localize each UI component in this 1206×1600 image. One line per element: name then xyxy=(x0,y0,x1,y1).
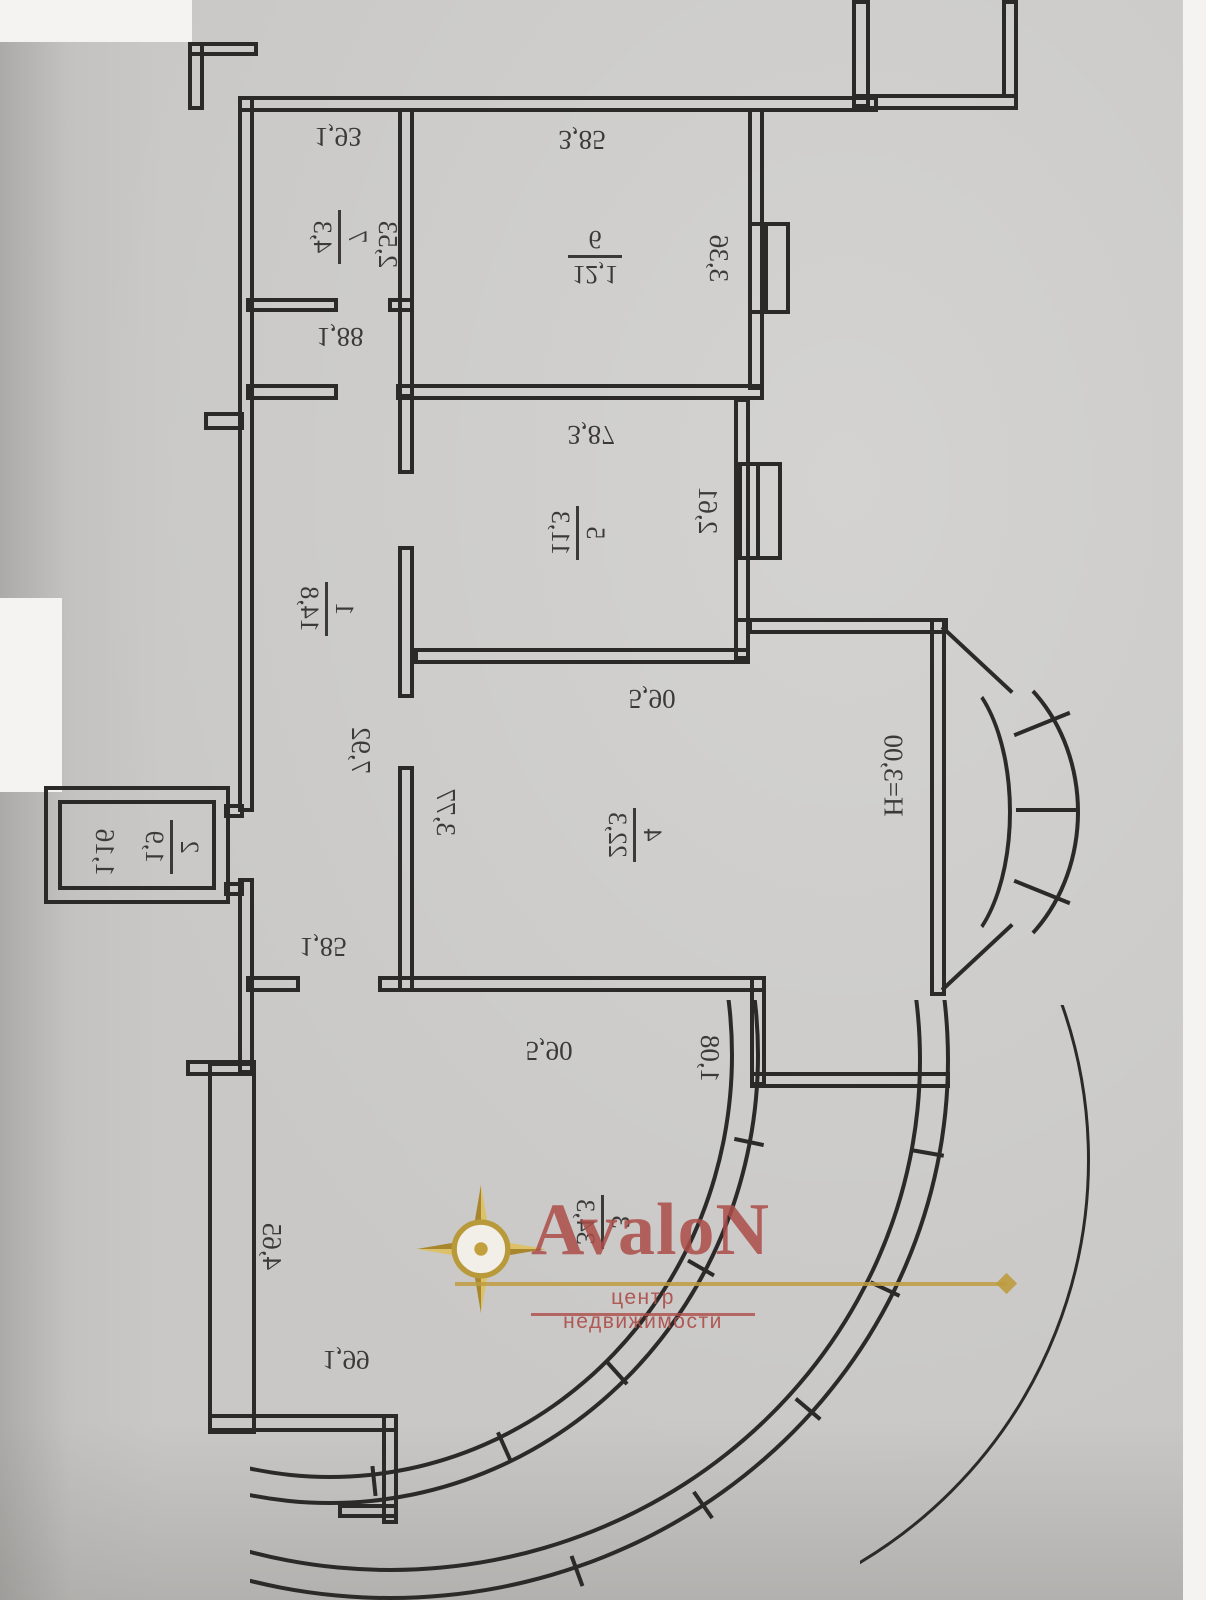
dim-corridor-door: 1,85 xyxy=(276,926,370,968)
room-number: 5 xyxy=(582,527,609,540)
fraction-bar xyxy=(339,210,342,264)
dim-text: 2,61 xyxy=(693,487,724,534)
room-area: 11,3 xyxy=(547,511,574,556)
wall xyxy=(224,804,244,818)
window-room5 xyxy=(738,462,782,560)
dim-text: 1,99 xyxy=(322,1345,369,1376)
wall xyxy=(398,384,414,474)
dim-text: 3,36 xyxy=(704,235,735,282)
dim-text: 4,65 xyxy=(257,1223,288,1270)
dim-kitchen-window: 3,36 xyxy=(700,210,738,308)
wall xyxy=(852,0,870,108)
dim-text: 3,85 xyxy=(558,125,605,156)
dim-kitchen-width: 3,85 xyxy=(522,118,642,162)
wall xyxy=(238,96,878,112)
dim-text: 3,87 xyxy=(567,420,614,451)
fraction-bar xyxy=(171,820,174,874)
room-area: 14,8 xyxy=(296,586,323,632)
dim-living-side: 4,65 xyxy=(254,1200,290,1294)
room-label-bathroom: 74,3 xyxy=(293,193,387,281)
dim-text: 1,08 xyxy=(695,1035,726,1082)
ceiling-height-note: Н=3,00 xyxy=(870,694,916,858)
dim-text: Н=3,00 xyxy=(878,735,909,817)
wall xyxy=(396,384,764,400)
room-area: 34,3 xyxy=(572,1199,599,1245)
wall xyxy=(748,618,948,634)
dim-text: 1,16 xyxy=(90,829,121,876)
room-area: 4,3 xyxy=(309,221,336,254)
wall xyxy=(398,546,414,698)
dim-text: 1,93 xyxy=(314,122,361,153)
wall xyxy=(1002,0,1018,98)
dim-text: 1,88 xyxy=(316,322,363,353)
window-tick xyxy=(1016,808,1078,812)
room-number: 3 xyxy=(607,1216,634,1229)
dim-room4-side: 3,77 xyxy=(428,764,464,862)
room-area: 12,1 xyxy=(572,261,618,288)
dim-room5-width: 3,87 xyxy=(540,414,642,456)
dim-room4-width: 5,90 xyxy=(590,678,714,720)
dim-living-step: 1,08 xyxy=(690,1016,730,1102)
floor-plan-photo: { "watermark": { "brand": "AvaloN", "tag… xyxy=(0,0,1206,1600)
fraction-bar xyxy=(568,256,622,259)
floor-plan-drawing: 1,93 2,53 1,88 3,85 3,36 3,87 2,61 7,92 … xyxy=(0,0,1206,1600)
dim-hall-width: 1,88 xyxy=(288,316,392,358)
dim-text: 5,90 xyxy=(525,1036,572,1067)
wall-vent-stub xyxy=(204,412,244,430)
room-number: 4 xyxy=(639,829,666,842)
dim-text: 3,77 xyxy=(431,789,462,836)
wall xyxy=(246,384,338,400)
dim-room5-window: 2,61 xyxy=(690,460,726,562)
window-kitchen xyxy=(748,222,790,314)
bay-window-arc-outer xyxy=(790,644,1080,980)
wall xyxy=(734,618,750,664)
room-label-room5: 511,3 xyxy=(529,489,627,577)
window-glass-line xyxy=(764,226,768,310)
wall xyxy=(378,976,766,992)
room-number: 1 xyxy=(331,603,358,616)
wall xyxy=(246,976,300,992)
dim-text: 5,90 xyxy=(628,684,675,715)
room-label-kitchen: 612,1 xyxy=(546,208,644,306)
dim-bathroom-width: 1,93 xyxy=(282,116,394,158)
dim-text: 7,92 xyxy=(346,727,377,774)
room-number: 7 xyxy=(344,231,371,244)
wall xyxy=(208,1062,256,1434)
dim-wc-width: 1,16 xyxy=(86,810,124,896)
dim-living-bottom: 1,99 xyxy=(294,1338,398,1382)
room-label-wc: 21,9 xyxy=(129,811,215,883)
dim-living-width: 5,90 xyxy=(490,1030,608,1072)
wall xyxy=(852,94,1018,110)
wall xyxy=(246,298,338,312)
dim-corridor-length: 7,92 xyxy=(344,706,378,796)
room-label-corridor: 114,8 xyxy=(288,564,366,654)
fraction-bar xyxy=(577,506,580,560)
wall xyxy=(186,1060,256,1076)
window-glass-line xyxy=(756,466,760,556)
room-number: 6 xyxy=(589,226,602,253)
fraction-bar xyxy=(602,1195,605,1249)
wall xyxy=(224,882,244,896)
room-area: 1,9 xyxy=(141,831,168,864)
fraction-bar xyxy=(326,582,329,636)
wall xyxy=(414,648,750,664)
room-area: 22,3 xyxy=(604,812,631,858)
dim-text: 1,85 xyxy=(299,932,346,963)
wall xyxy=(238,96,254,812)
room-number: 2 xyxy=(176,841,203,854)
room-label-living: 334,3 xyxy=(547,1177,659,1267)
room-label-room4: 422,3 xyxy=(586,790,684,880)
wall xyxy=(398,766,414,992)
wall xyxy=(188,42,258,56)
fraction-bar xyxy=(634,808,637,862)
